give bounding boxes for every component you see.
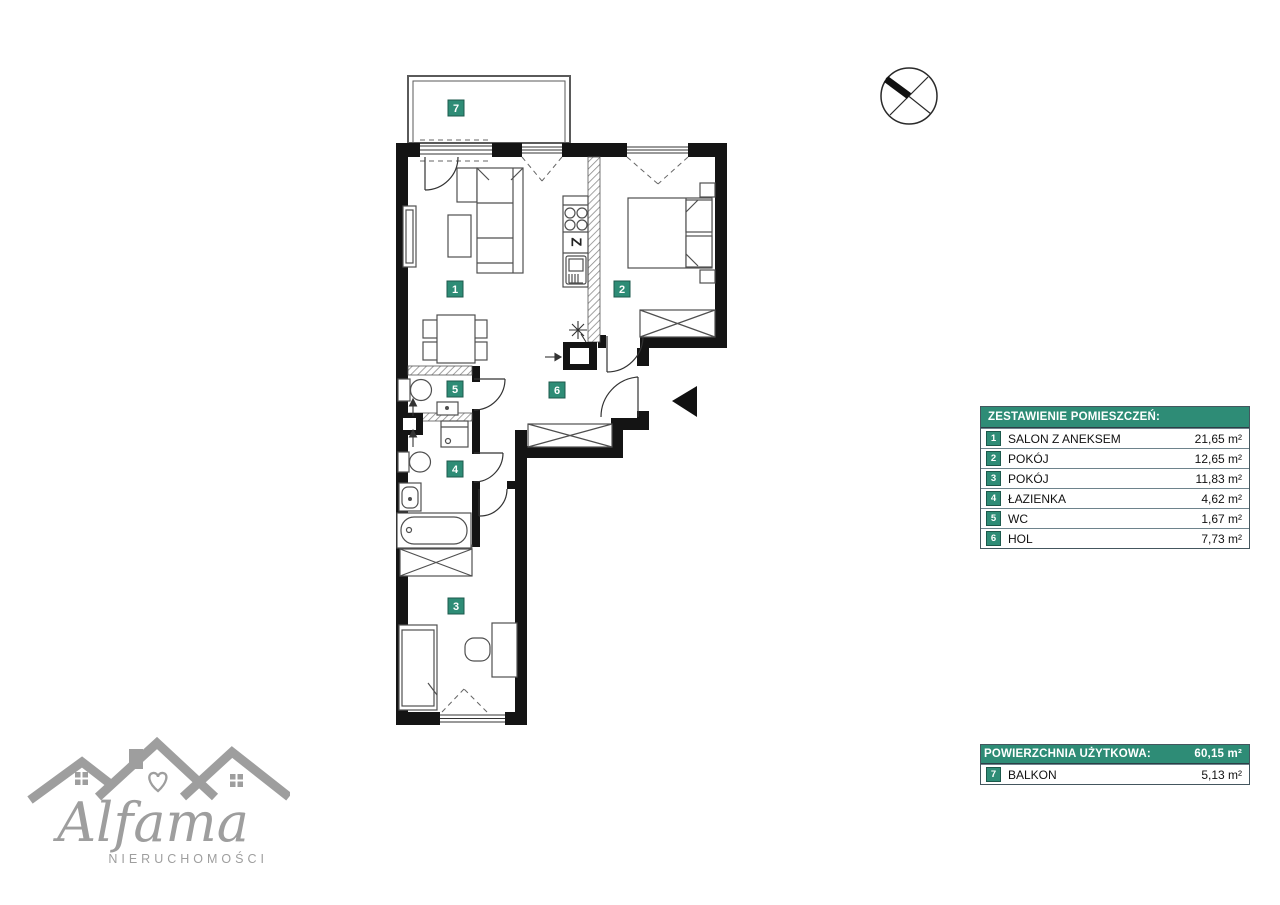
room-badge-4: 4	[986, 491, 1001, 506]
table-row: 4 ŁAZIENKA 4,62 m²	[981, 488, 1249, 508]
room-label-4: 4	[447, 461, 463, 477]
room-name: BALKON	[1008, 768, 1201, 782]
room-badge-5: 5	[986, 511, 1001, 526]
sink-label: Z	[568, 237, 585, 246]
table-row: 3 POKÓJ 11,83 m²	[981, 468, 1249, 488]
svg-text:4: 4	[452, 464, 459, 476]
table-row: 7 BALKON 5,13 m²	[981, 764, 1249, 784]
entrance-arrow-icon	[672, 386, 697, 417]
room-name: WC	[1008, 512, 1201, 526]
floorplan-page: { "colors": { "accent_teal": "#2E8C76", …	[0, 0, 1280, 905]
legend-table-header: ZESTAWIENIE POMIESZCZEŃ:	[981, 407, 1249, 428]
room-label-2: 2	[614, 281, 630, 297]
room-badge-7: 7	[986, 767, 1001, 782]
bedroom2-furniture	[628, 183, 715, 337]
table-row: 1 SALON Z ANEKSEM 21,65 m²	[981, 428, 1249, 448]
svg-text:2: 2	[619, 284, 625, 296]
summary-title: POWIERZCHNIA UŻYTKOWA:	[984, 748, 1151, 760]
room-name: ŁAZIENKA	[1008, 492, 1201, 506]
summary-table: POWIERZCHNIA UŻYTKOWA: 60,15 m² 7 BALKON…	[980, 744, 1250, 785]
svg-text:3: 3	[453, 601, 459, 613]
room-name: POKÓJ	[1008, 452, 1195, 466]
room-label-7: 7	[448, 100, 464, 116]
compass-icon	[866, 54, 950, 138]
table-row: 6 HOL 7,73 m²	[981, 528, 1249, 548]
room-label-3: 3	[448, 598, 464, 614]
ventilation-star-icon	[569, 321, 587, 342]
bedroom3-furniture	[399, 549, 517, 710]
room-area: 21,65 m²	[1195, 432, 1242, 446]
room-name: SALON Z ANEKSEM	[1008, 432, 1195, 446]
logo-brand-text: Alfama	[52, 791, 249, 854]
room-name: POKÓJ	[1008, 472, 1196, 486]
summary-total: 60,15 m²	[1194, 748, 1242, 760]
room-name: HOL	[1008, 532, 1201, 546]
svg-text:6: 6	[554, 385, 560, 397]
logo-subtitle-text: NIERUCHOMOŚCI	[108, 851, 268, 866]
room-label-5: 5	[447, 381, 463, 397]
room-area: 12,65 m²	[1195, 452, 1242, 466]
table-row: 2 POKÓJ 12,65 m²	[981, 448, 1249, 468]
room-area: 7,73 m²	[1201, 532, 1242, 546]
salon-furniture	[403, 168, 523, 363]
brand-logo: Alfama NIERUCHOMOŚCI	[25, 733, 290, 878]
room-label-1: 1	[447, 281, 463, 297]
svg-text:7: 7	[453, 103, 459, 115]
floor-plan: Z	[380, 60, 740, 740]
legend-title: ZESTAWIENIE POMIESZCZEŃ:	[988, 411, 1160, 423]
hall-furniture	[528, 424, 612, 447]
logo-heart-icon	[149, 773, 166, 791]
bathroom-furniture	[397, 421, 471, 548]
room-badge-1: 1	[986, 431, 1001, 446]
svg-text:1: 1	[452, 284, 458, 296]
room-area: 11,83 m²	[1196, 472, 1242, 486]
table-row: 5 WC 1,67 m²	[981, 508, 1249, 528]
room-label-6: 6	[549, 382, 565, 398]
svg-text:5: 5	[452, 384, 458, 396]
room-area: 5,13 m²	[1201, 768, 1242, 782]
legend-table: ZESTAWIENIE POMIESZCZEŃ: 1 SALON Z ANEKS…	[980, 406, 1250, 549]
room-area: 1,67 m²	[1201, 512, 1242, 526]
room-badge-3: 3	[986, 471, 1001, 486]
room-badge-2: 2	[986, 451, 1001, 466]
summary-table-header: POWIERZCHNIA UŻYTKOWA: 60,15 m²	[981, 745, 1249, 764]
room-area: 4,62 m²	[1201, 492, 1242, 506]
balcony	[408, 76, 570, 143]
room-badge-6: 6	[986, 531, 1001, 546]
